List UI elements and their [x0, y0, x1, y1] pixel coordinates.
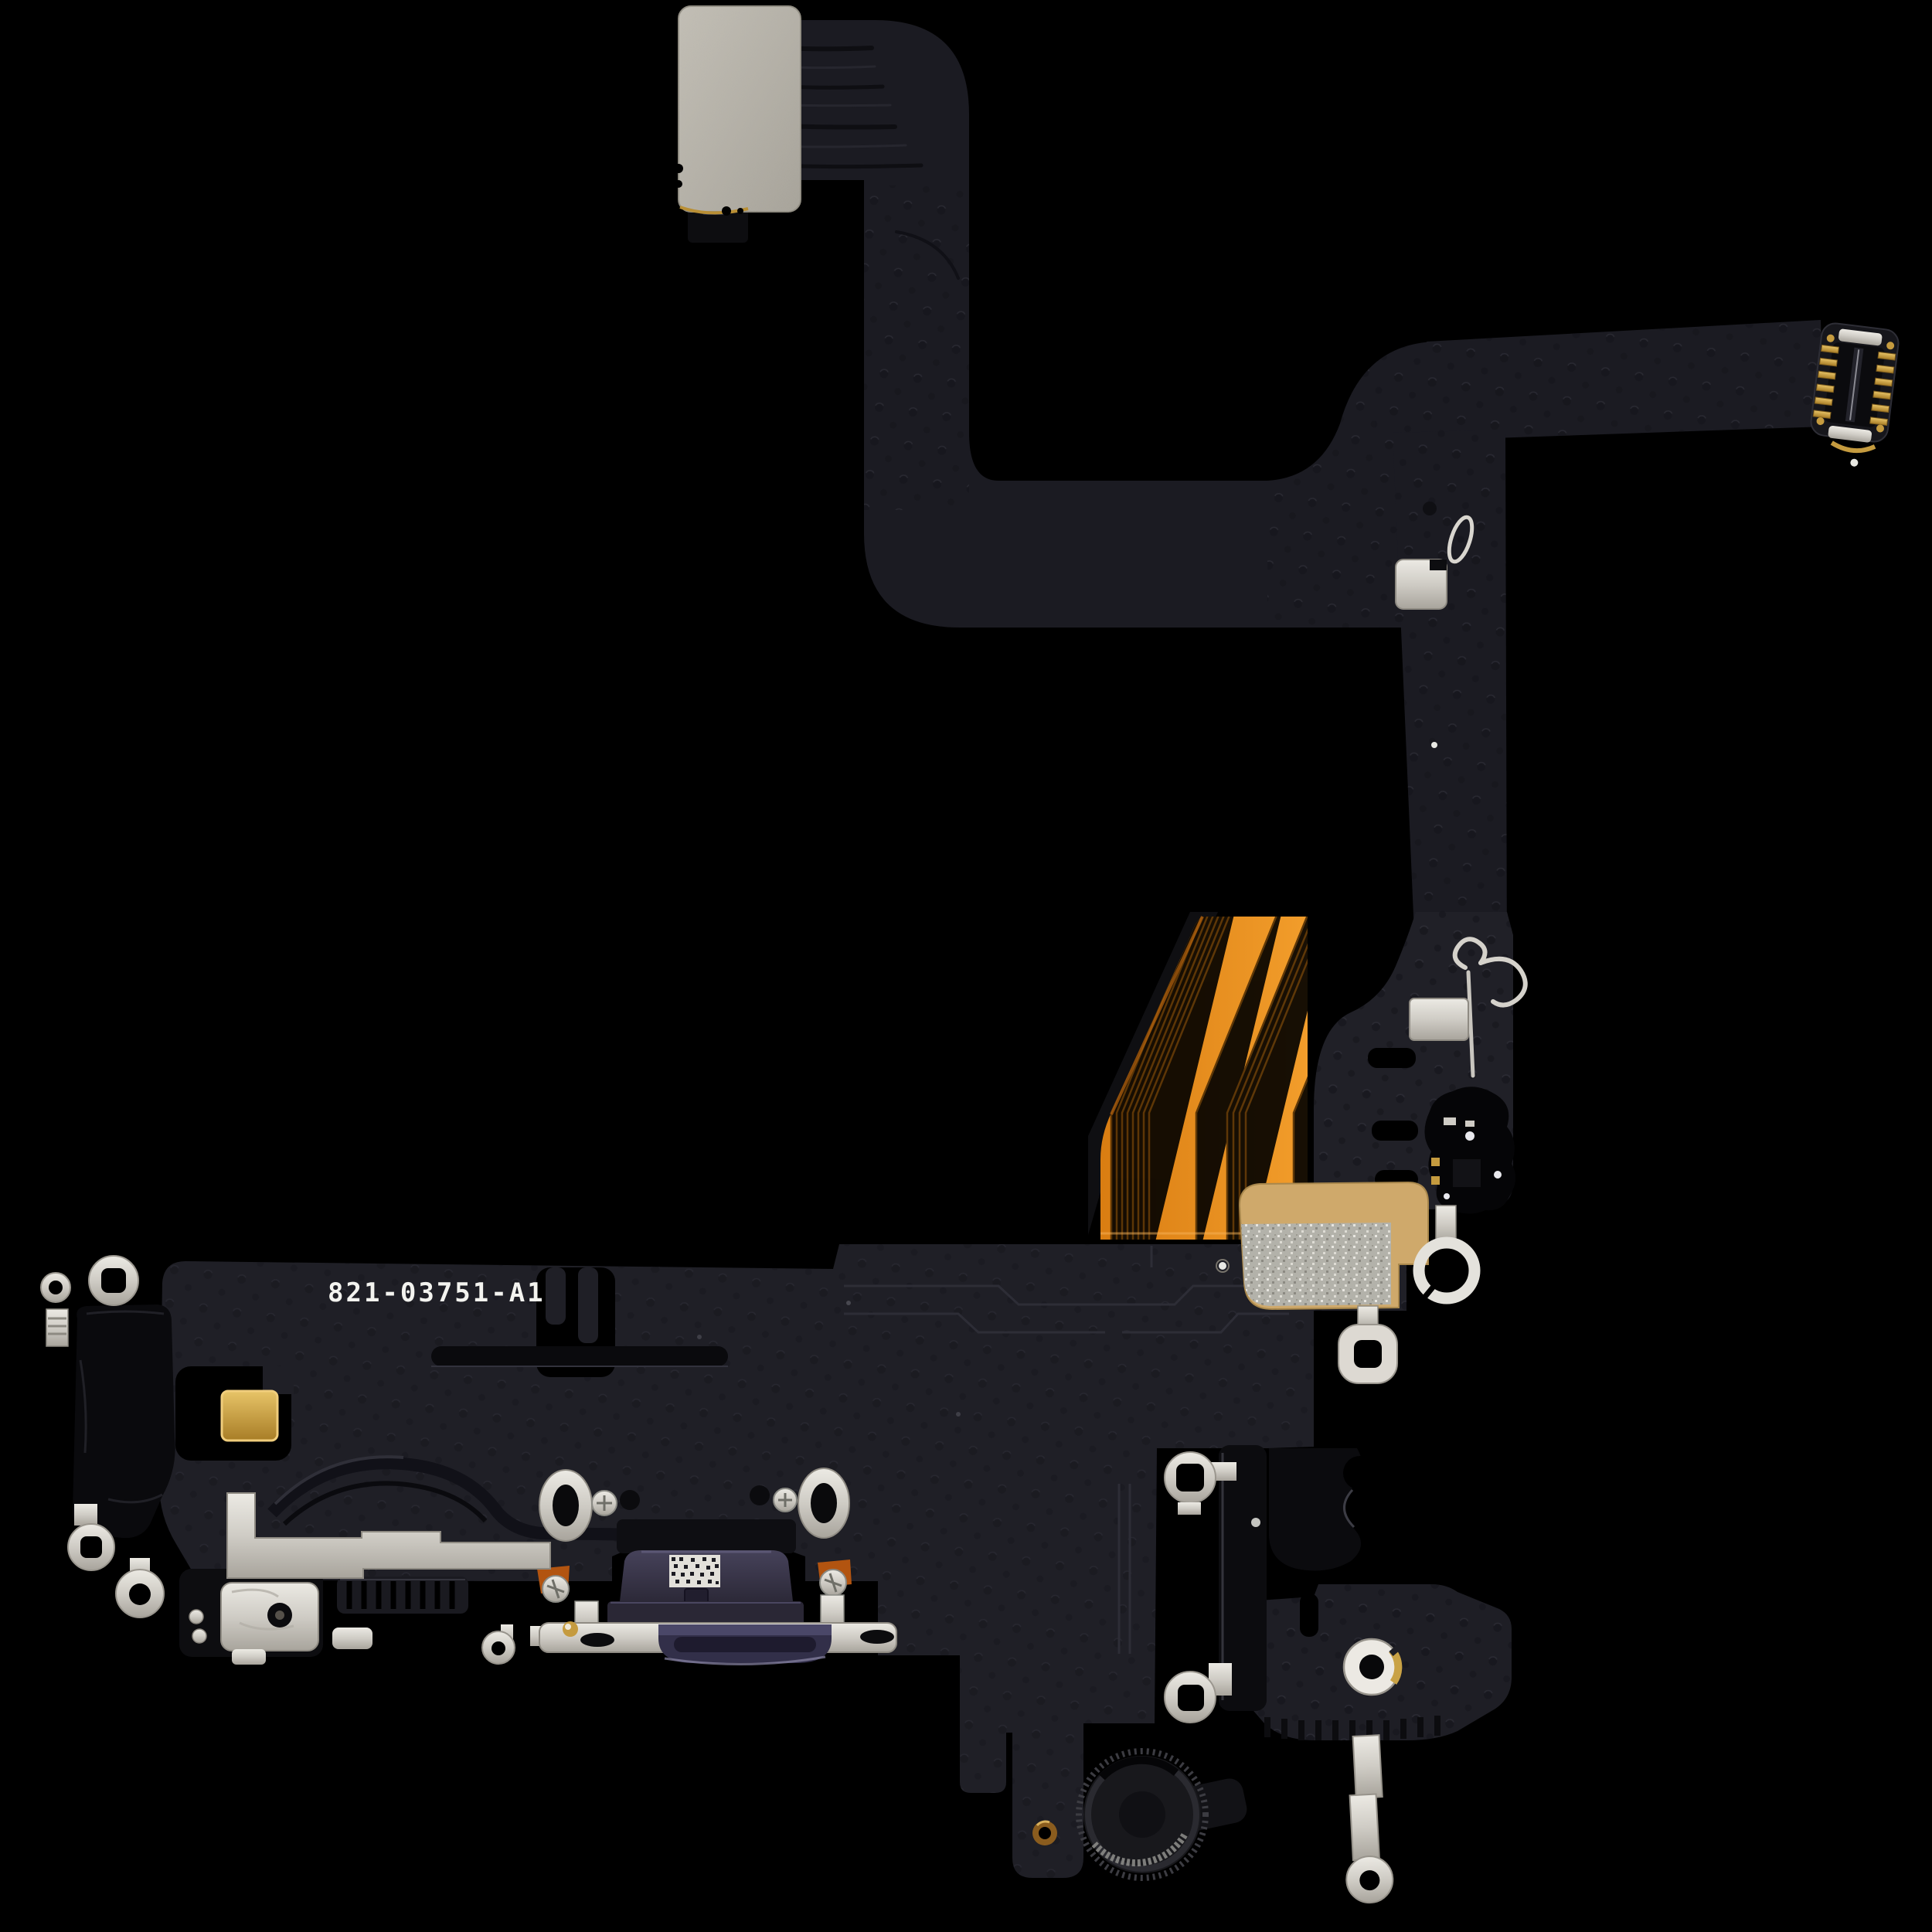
epoxy-blob [1424, 1087, 1515, 1213]
top-stiffener-pad [674, 6, 801, 243]
gold-contact-window [175, 1366, 294, 1461]
flex-arm-eyelet [1032, 1821, 1057, 1845]
board-slot [431, 1346, 728, 1366]
charging-port-flex-photo: 821-03751-A1 [0, 0, 1932, 1932]
ground-lug-b [89, 1256, 138, 1305]
metal-pad [1410, 998, 1468, 1040]
ridged-bumper [337, 1577, 468, 1614]
gold-contact-pad [222, 1391, 277, 1440]
product-photo-canvas: 821-03751-A1 [0, 0, 1932, 1932]
port-tongue [658, 1624, 832, 1665]
qr-code-sticker [669, 1555, 720, 1587]
part-number-label: 821-03751-A1 [328, 1277, 546, 1308]
